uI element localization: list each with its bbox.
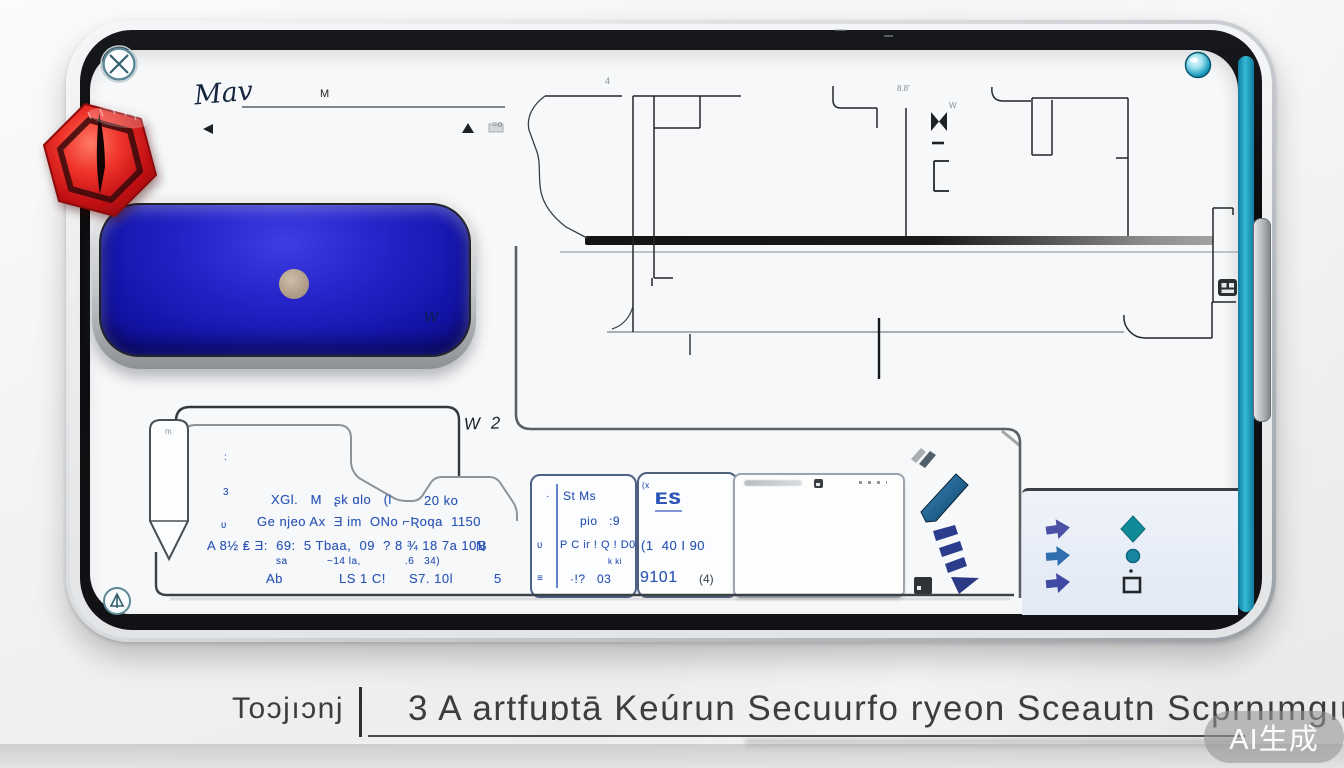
note-row: 20 ko [424, 493, 458, 508]
tab-mark: m [165, 427, 172, 436]
note-row: sa [276, 556, 288, 567]
caption-divider [359, 687, 362, 737]
caption-shadow [745, 739, 1245, 749]
note-mark: 3 [223, 487, 229, 498]
tool-panel [1022, 488, 1238, 615]
mini-display-icon[interactable] [914, 577, 932, 594]
note-card-c[interactable] [733, 473, 905, 598]
blue-button-center-dot [279, 269, 309, 299]
ai-watermark: AI生成 [1204, 711, 1344, 763]
card-b-line: (1 40 I 90 [641, 538, 705, 553]
note-mark: ʋ [221, 520, 227, 531]
card-a-line: P C ir ! Q ! D0 [560, 539, 636, 551]
card-a-mark: ≡ [537, 573, 543, 584]
note-row: Ab [266, 571, 283, 586]
card-b-tiny: (x [642, 481, 650, 490]
note-mark: : [224, 452, 227, 463]
card-c-dots [859, 481, 887, 484]
blue-button[interactable] [99, 203, 471, 357]
side-button[interactable] [1253, 218, 1271, 422]
card-a-line: ·!? 03 [570, 572, 611, 586]
button-mark: W [424, 309, 438, 326]
note-row: XGl. M ʂk ɑlo (l [271, 492, 392, 507]
mini-widget-icon [814, 479, 823, 488]
note-row: N [476, 539, 486, 554]
card-b-heading: ES [655, 489, 682, 512]
note-row: Ge njeo Ax Ǝ im ONo ⌐Ʀoqa 1150 [257, 514, 481, 529]
dimension-label: 8.8' [897, 84, 910, 93]
note-row: ~14 la, [327, 556, 361, 567]
card-divider [556, 484, 558, 588]
line-label: M [320, 88, 329, 100]
card-a-line: St Ms [563, 489, 596, 503]
caption-underline [368, 735, 1245, 737]
plan-label: W 2 [464, 413, 504, 434]
handwritten-label: Mav [193, 75, 254, 111]
note-row: .6 34) [405, 556, 440, 567]
card-a-line: pio :9 [580, 514, 620, 528]
note-row: S7. 10l [409, 571, 453, 586]
stage: Mav M W 2 8.8' 4 =o W W m : 3 ʋ XGl. M ʂ… [0, 0, 1344, 768]
card-c-titlebar [744, 480, 802, 486]
teal-edge-strip [1238, 56, 1254, 612]
dimension-label: 4 [605, 76, 610, 86]
dimension-label: W [949, 101, 957, 110]
card-b-number: 9101 [640, 569, 678, 587]
caption-title: 3 A artfuɒtā Keúrun Secuurfo ryeon Sceau… [408, 689, 1344, 729]
note-row: LS 1 C! [339, 571, 386, 586]
caption-brand: Toɔjıɔnj [232, 692, 344, 726]
card-a-mark: · [546, 491, 550, 502]
card-a-mark: ʋ [537, 540, 543, 551]
blue-button-base [92, 197, 476, 369]
card-a-line: k ki [608, 557, 622, 566]
note-row: A 8½ ₤ Ǝ: 69: 5 Tbaa, 09 ? 8 ¾ 18 7a 10Ɓ [207, 538, 487, 553]
note-row: 5 [494, 571, 502, 586]
card-b-suffix: (4) [699, 572, 714, 586]
dimension-label: =o [492, 119, 502, 129]
